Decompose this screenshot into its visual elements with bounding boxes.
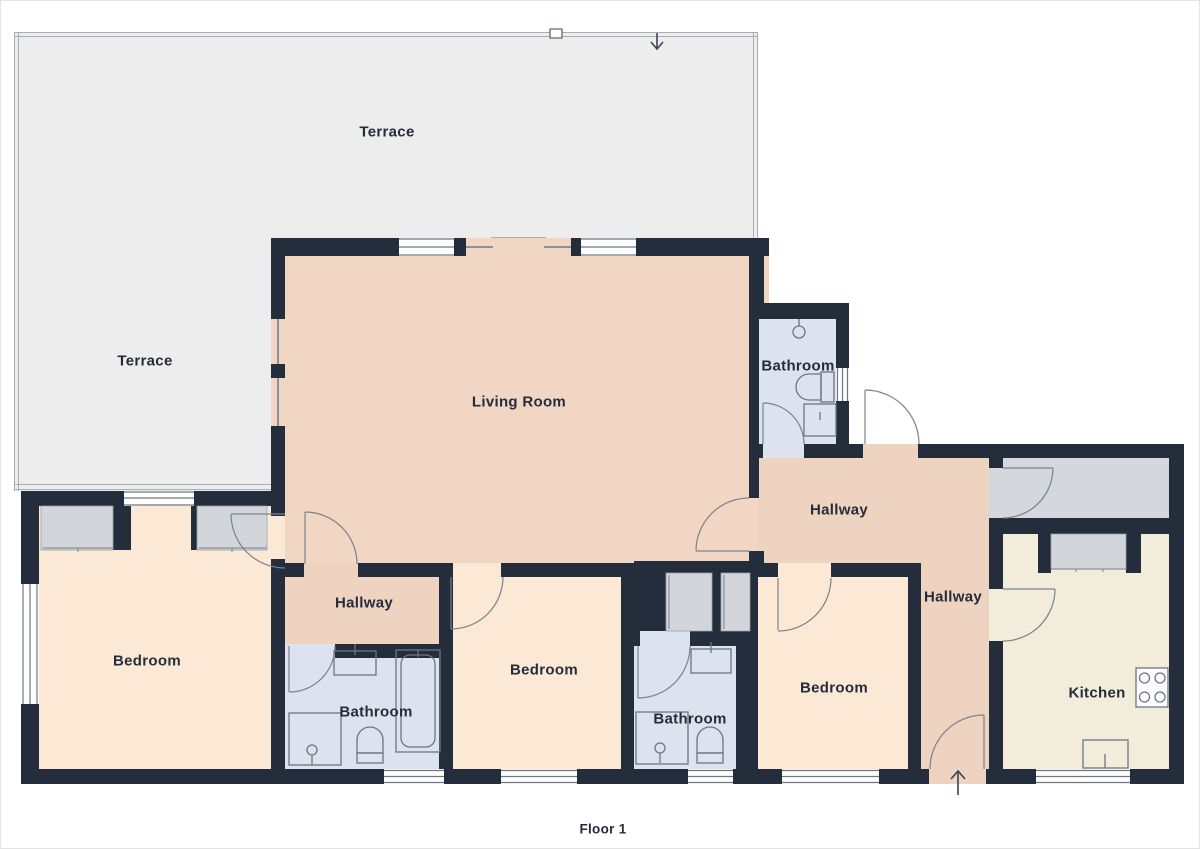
floorplan-graphic (1, 1, 1200, 849)
room-label-terrace-top: Terrace (359, 124, 414, 141)
floorplan: Terrace Terrace Living Room Bathroom Hal… (0, 0, 1200, 849)
window (399, 238, 454, 256)
window (836, 368, 849, 401)
closet (666, 573, 712, 631)
window (501, 769, 577, 784)
room-label-bathroom-top: Bathroom (761, 358, 834, 375)
window (384, 769, 444, 784)
room-label-bedroom-left: Bedroom (113, 653, 181, 670)
room-label-bedroom-right: Bedroom (800, 680, 868, 697)
room-label-hallway-left: Hallway (335, 595, 393, 612)
room-label-bathroom-center: Bathroom (653, 711, 726, 728)
stove-icon (1136, 668, 1168, 707)
window (1036, 769, 1130, 784)
window (21, 584, 39, 704)
door-exterior-back (865, 390, 919, 444)
closet (41, 506, 113, 550)
window (782, 769, 879, 784)
room-label-terrace-left: Terrace (117, 353, 172, 370)
room-label-hallway-right: Hallway (924, 589, 982, 606)
closet (1051, 534, 1126, 569)
room-label-bedroom-center: Bedroom (510, 662, 578, 679)
window (581, 238, 636, 256)
window (688, 769, 733, 784)
window (124, 491, 194, 506)
room-label-kitchen: Kitchen (1068, 685, 1125, 702)
room-label-living-room: Living Room (472, 394, 566, 411)
floor-title: Floor 1 (579, 822, 626, 837)
closet (197, 506, 267, 550)
hallway-main-area (758, 444, 1003, 563)
closet (721, 573, 750, 631)
room-fills (14, 32, 1184, 784)
room-label-hallway-main: Hallway (810, 502, 868, 519)
bathroom-center-area (634, 631, 736, 769)
terrace-gate-marker (550, 29, 562, 38)
room-label-bathroom-left: Bathroom (339, 704, 412, 721)
